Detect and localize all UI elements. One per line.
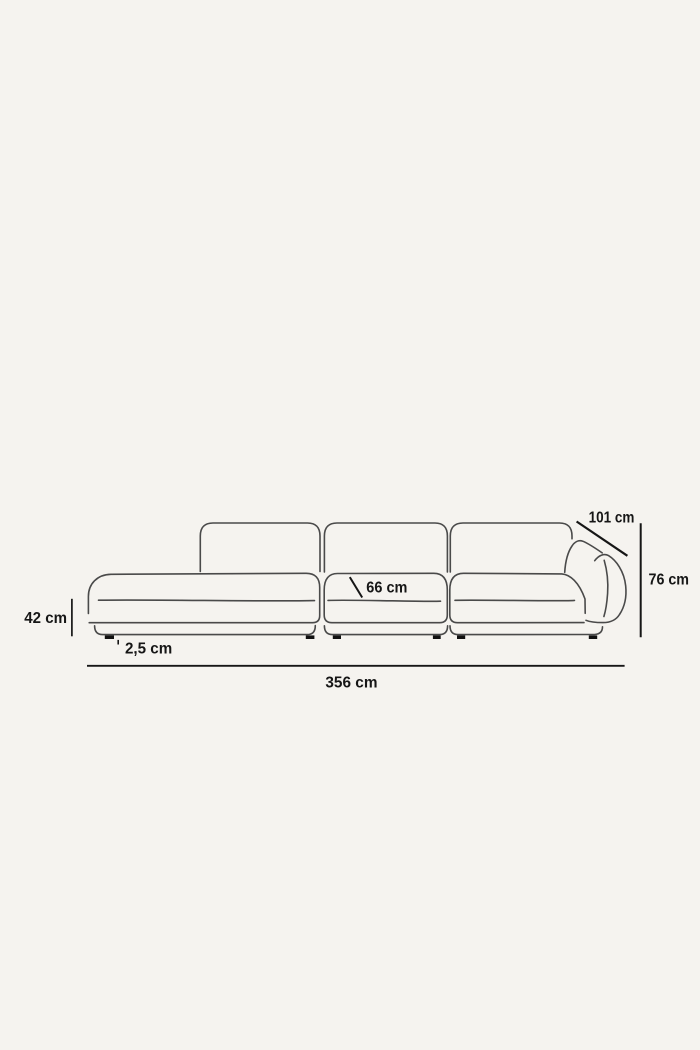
svg-text:356 cm: 356 cm xyxy=(325,674,377,691)
svg-text:66 cm: 66 cm xyxy=(366,579,407,596)
svg-text:42 cm: 42 cm xyxy=(24,610,67,627)
svg-text:2,5 cm: 2,5 cm xyxy=(125,640,172,657)
svg-text:101 cm: 101 cm xyxy=(589,510,635,527)
svg-text:76 cm: 76 cm xyxy=(649,572,690,589)
